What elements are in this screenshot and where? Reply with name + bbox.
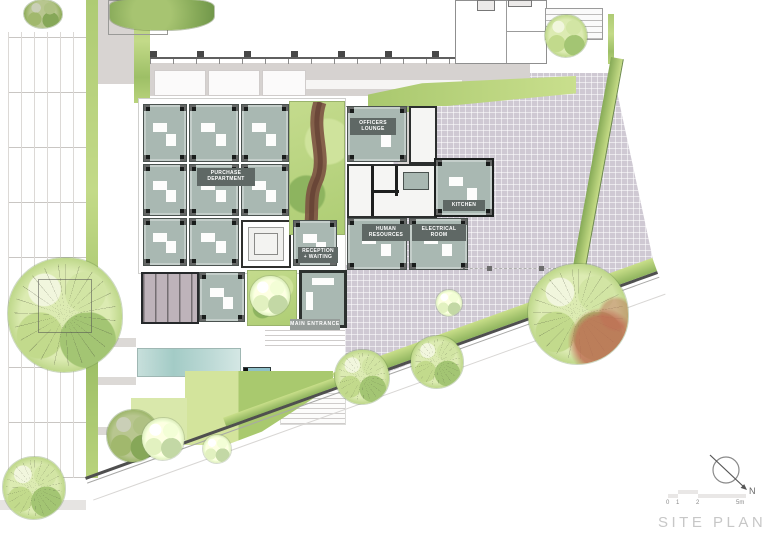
room-label-purchase: PURCHASE DEPARTMENT <box>197 168 255 186</box>
annex-wall <box>506 31 546 32</box>
courtyard-garden <box>289 101 345 235</box>
colonnade-edge-line <box>150 57 462 64</box>
office-room <box>241 104 289 162</box>
terrace-stall <box>154 70 206 96</box>
large-tree-west <box>8 258 122 372</box>
scale-segment <box>678 490 698 494</box>
scale-tick-1: 1 <box>676 500 679 506</box>
office-room <box>143 218 187 266</box>
label-main-entrance: MAIN ENTRANCE <box>290 319 340 330</box>
room-label-electrical: ELECTRICAL ROOM <box>412 224 466 241</box>
roof-mark <box>477 0 495 11</box>
scale-segment <box>668 494 678 498</box>
hedge-strip-left <box>86 0 98 478</box>
plaza-column-dot <box>487 266 492 271</box>
scale-segment <box>698 494 746 498</box>
plaza-column-dot <box>539 266 544 271</box>
scale-tick-0: 0 <box>666 500 669 506</box>
entry-steps <box>265 330 345 346</box>
room-label-kitchen: KITCHEN <box>443 200 485 211</box>
room-label-human-resources: HUMAN RESOURCES <box>362 224 410 241</box>
tree <box>142 418 184 460</box>
tree <box>436 290 462 316</box>
restrooms <box>141 272 199 324</box>
dining-room <box>199 272 245 322</box>
room-label-reception: RECEPTION + WAITING <box>298 247 338 263</box>
office-room <box>143 104 187 162</box>
walk-crossband <box>98 377 136 385</box>
service-room <box>409 106 437 164</box>
annex-building-outline <box>455 0 547 64</box>
paver-grid-left <box>8 32 87 478</box>
scale-tick-2: 2 <box>696 500 699 506</box>
office-room <box>143 164 187 216</box>
tree <box>203 435 231 463</box>
annex-wall <box>506 1 507 63</box>
tree <box>335 350 389 404</box>
service-core <box>347 164 437 218</box>
terrace-stall <box>262 70 306 96</box>
scale-bar: 0 1 2 5m <box>666 490 754 508</box>
core-wall <box>371 190 399 193</box>
garden-tree <box>250 276 290 316</box>
tree <box>24 0 62 28</box>
site-plan-drawing: PURCHASE DEPARTMENT OFFICERS LOUNGE HUMA… <box>0 0 768 543</box>
tree <box>545 15 587 57</box>
garden-path-curve <box>290 102 344 234</box>
corner-tree <box>3 457 65 519</box>
tree <box>411 336 463 388</box>
terrace-stall <box>208 70 260 96</box>
core-cell <box>403 172 429 190</box>
drawing-title: SITE PLAN <box>658 514 766 531</box>
roof-mark <box>508 0 532 7</box>
office-room <box>189 104 239 162</box>
large-tree-east <box>528 264 628 364</box>
scale-tick-5m: 5m <box>736 500 744 506</box>
office-room <box>189 218 239 266</box>
tree-canopy-top <box>110 0 214 30</box>
room-label-officers-lounge: OFFICERS LOUNGE <box>350 118 396 135</box>
stair-atrium <box>241 220 291 268</box>
